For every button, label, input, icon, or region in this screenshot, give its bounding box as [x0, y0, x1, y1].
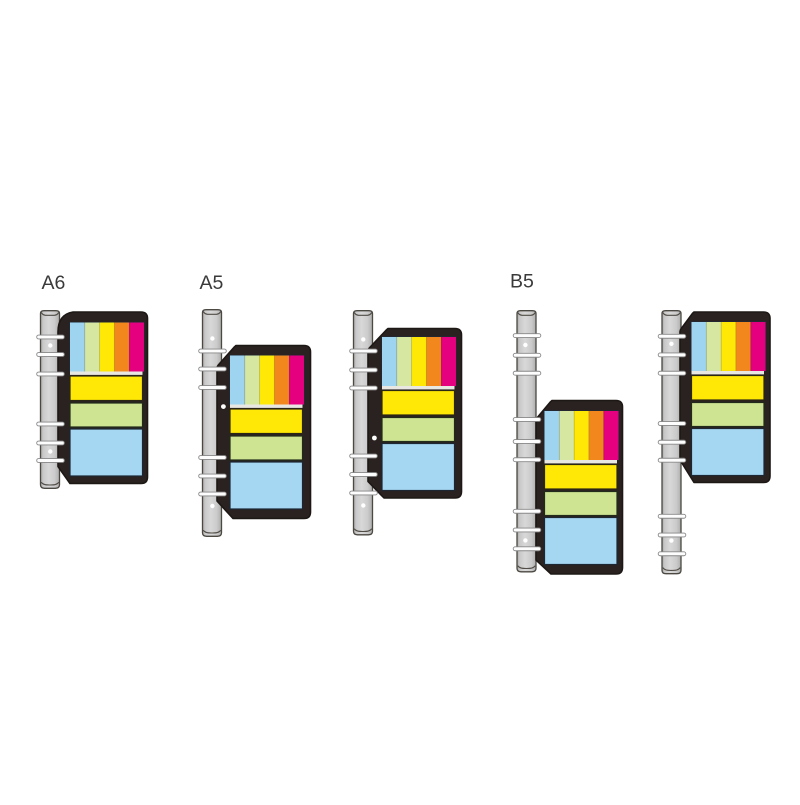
svg-text:B5: B5: [510, 271, 534, 293]
svg-text:A6: A6: [42, 272, 66, 294]
svg-text:A5: A5: [200, 272, 224, 294]
